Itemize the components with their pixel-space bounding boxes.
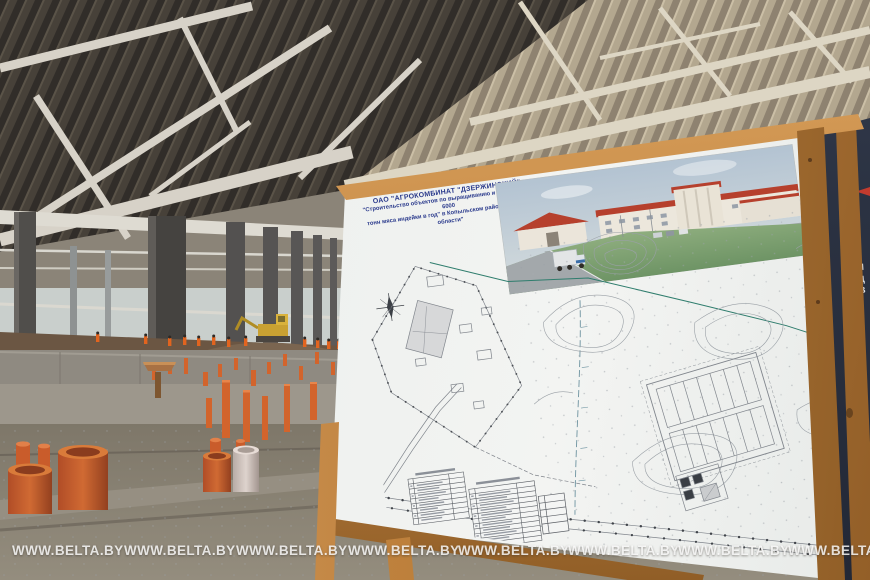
watermark-text: WWW.BELTA.BY bbox=[12, 543, 124, 558]
watermark-text: WWW.BELTA.BY bbox=[568, 543, 680, 558]
legend-table-1 bbox=[407, 467, 469, 525]
main-compound bbox=[352, 255, 534, 500]
screw-icon bbox=[808, 158, 812, 162]
watermark-text: WWW.BELTA.BY bbox=[788, 543, 870, 558]
site-plan-drawing bbox=[352, 180, 870, 580]
pipe-group-left bbox=[8, 441, 108, 514]
plan-notes-table bbox=[538, 493, 569, 534]
watermark-text: WWW.BELTA.BY bbox=[678, 543, 790, 558]
watermark-text: WWW.BELTA.BY bbox=[124, 543, 236, 558]
wood-knot bbox=[846, 408, 853, 418]
watermark-text: WWW.BELTA.BY bbox=[236, 543, 348, 558]
north-arrow-icon bbox=[375, 291, 406, 322]
legend-table-2 bbox=[468, 475, 542, 549]
watermark-text: WWW.BELTA.BY bbox=[348, 543, 460, 558]
construction-site-photo: П Д В ОАО "АГРОКОМБИНАТ "ДЗЕРЖИНСКИЙ" "С… bbox=[0, 0, 870, 580]
screw-icon bbox=[816, 300, 820, 304]
watermark-text: WWW.BELTA.BY bbox=[458, 543, 570, 558]
